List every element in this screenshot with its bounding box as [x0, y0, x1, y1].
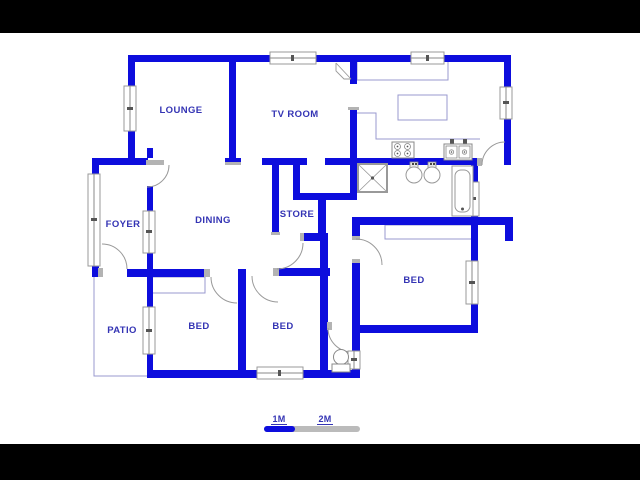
room-label-store: STORE [280, 209, 315, 220]
room-label-tv-room: TV ROOM [271, 109, 318, 120]
open-door-leaf [146, 160, 164, 165]
room-label-lounge: LOUNGE [159, 105, 202, 116]
room-label-bed-left: BED [188, 321, 209, 332]
scale-bar-blue-segment [264, 426, 295, 432]
window [466, 261, 478, 304]
stove-4-burner-icon [392, 142, 414, 158]
window [124, 86, 136, 131]
bathtub-icon [452, 166, 473, 216]
room-label-bed-right: BED [403, 275, 424, 286]
scale-underline-1m [271, 424, 287, 425]
scale-underline-2m [317, 424, 333, 425]
toilet-icon [332, 350, 350, 373]
room-label-dining: DINING [195, 215, 231, 226]
window [143, 307, 155, 354]
scale-label-2m: 2M [318, 414, 331, 424]
window [411, 52, 444, 64]
window [500, 87, 512, 119]
letterbox-bottom [0, 444, 640, 480]
floor-plan-viewer: LOUNGE TV ROOM FOYER DINING STORE PATIO … [0, 0, 640, 480]
floor-plan: LOUNGE TV ROOM FOYER DINING STORE PATIO … [0, 0, 640, 480]
window [88, 174, 100, 266]
room-label-bed-middle: BED [272, 321, 293, 332]
shower-tray-icon [358, 164, 387, 192]
window [143, 211, 155, 253]
room-label-patio: PATIO [107, 325, 137, 336]
room-label-foyer: FOYER [106, 219, 141, 230]
scale-label-1m: 1M [272, 414, 285, 424]
letterbox-top [0, 0, 640, 33]
window [257, 367, 303, 379]
window [270, 52, 316, 64]
